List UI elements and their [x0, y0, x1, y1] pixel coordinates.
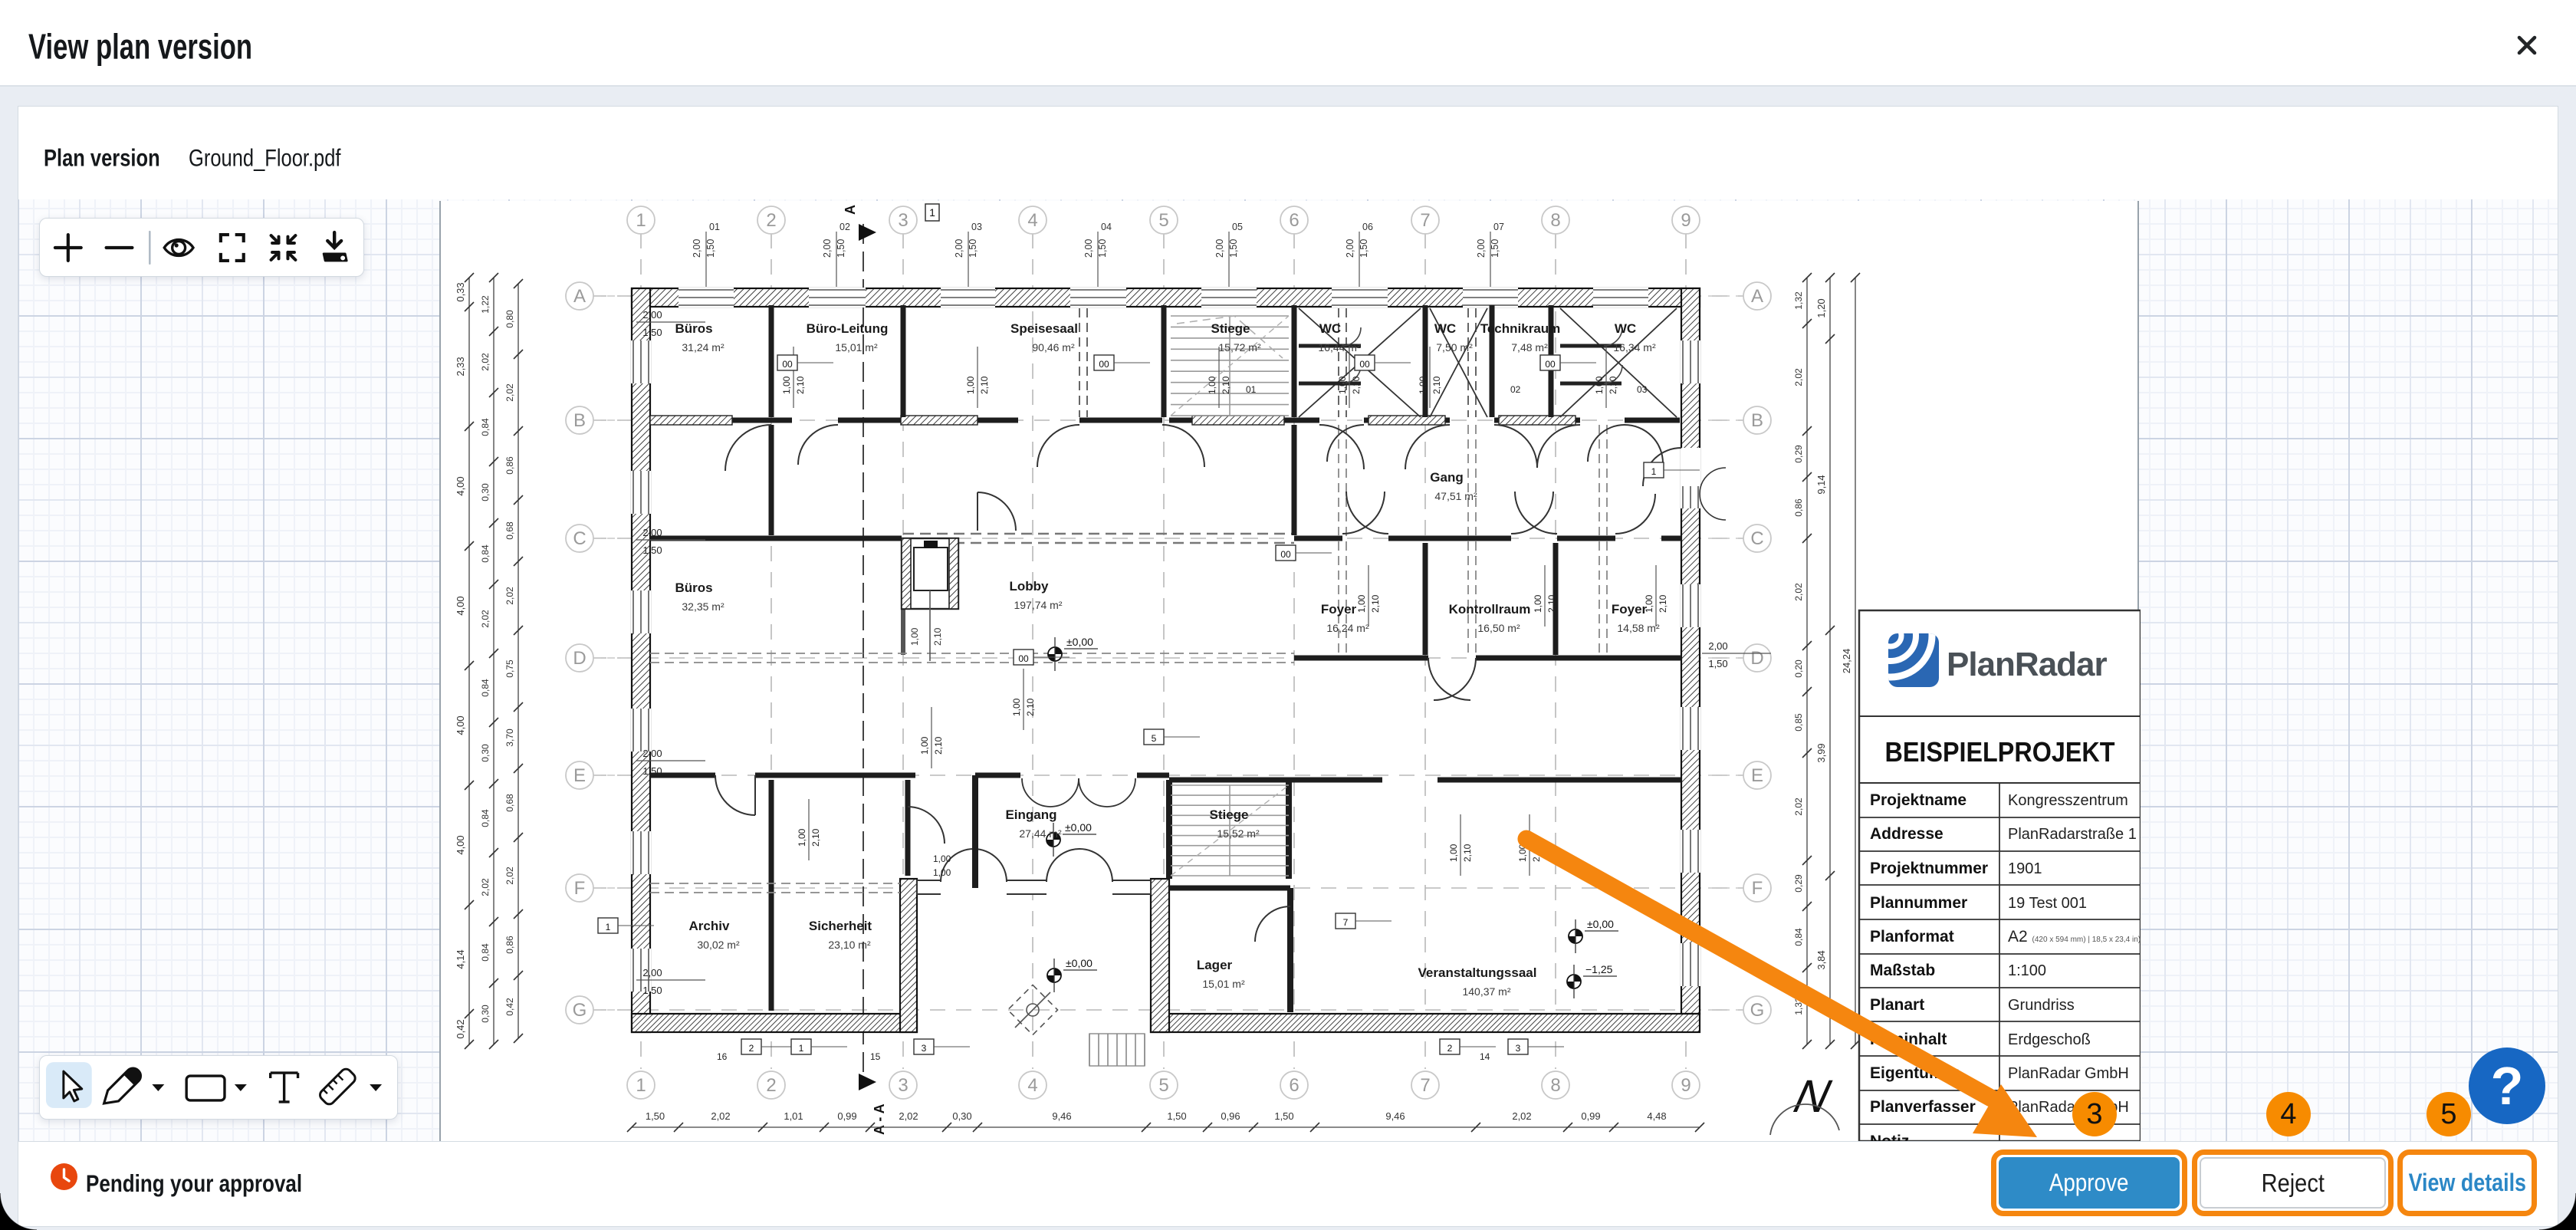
svg-text:0,42: 0,42: [455, 1019, 466, 1038]
svg-text:Planinhalt: Planinhalt: [1870, 1031, 1947, 1048]
svg-text:2,10: 2,10: [1370, 594, 1381, 613]
svg-text:1,00: 1,00: [1533, 594, 1543, 613]
svg-text:Foyer: Foyer: [1321, 602, 1357, 617]
svg-text:2,10: 2,10: [1608, 376, 1618, 394]
svg-text:Addresse: Addresse: [1870, 825, 1944, 843]
svg-text:Maßstab: Maßstab: [1870, 962, 1935, 979]
svg-text:1,00: 1,00: [797, 828, 807, 847]
svg-text:1,00: 1,00: [1594, 376, 1605, 394]
svg-text:D: D: [1750, 648, 1763, 669]
svg-text:01: 01: [1246, 384, 1257, 395]
svg-text:2,00: 2,00: [822, 239, 833, 258]
svg-text:2: 2: [766, 1075, 776, 1096]
svg-text:Eigentümer: Eigentümer: [1870, 1064, 1959, 1082]
svg-text:2: 2: [766, 210, 776, 231]
svg-text:3: 3: [898, 210, 908, 231]
svg-text:2,02: 2,02: [899, 1110, 918, 1122]
svg-text:1,50: 1,50: [705, 239, 716, 258]
svg-text:2,02: 2,02: [480, 610, 491, 628]
svg-text:Archiv: Archiv: [689, 919, 730, 933]
svg-text:2,10: 2,10: [1221, 376, 1231, 394]
svg-text:C: C: [573, 528, 586, 549]
svg-text:4: 4: [1027, 210, 1037, 231]
svg-text:0,86: 0,86: [504, 936, 515, 954]
svg-text:0,30: 0,30: [952, 1110, 971, 1122]
svg-text:6: 6: [1289, 210, 1299, 231]
svg-text:0,84: 0,84: [1793, 928, 1804, 946]
svg-text:7: 7: [1343, 917, 1349, 928]
svg-text:9,14: 9,14: [1815, 475, 1827, 494]
svg-text:B: B: [1751, 410, 1763, 431]
svg-text:Foyer: Foyer: [1612, 602, 1648, 617]
svg-text:6: 6: [1289, 1075, 1299, 1096]
svg-text:5: 5: [1158, 1075, 1168, 1096]
svg-text:−1,25: −1,25: [1585, 963, 1613, 975]
svg-text:Stiege: Stiege: [1209, 807, 1248, 822]
svg-text:1,00: 1,00: [1356, 594, 1367, 613]
svg-text:7,48 m²: 7,48 m²: [1511, 341, 1548, 354]
svg-text:1,00: 1,00: [1644, 594, 1654, 613]
svg-text:9: 9: [1681, 1075, 1691, 1096]
svg-text:1,00: 1,00: [933, 853, 951, 864]
svg-text:07: 07: [1493, 222, 1504, 232]
svg-text:8: 8: [1550, 210, 1560, 231]
svg-text:Kontrollraum: Kontrollraum: [1449, 602, 1531, 617]
svg-text:14,58 m²: 14,58 m²: [1617, 622, 1660, 634]
svg-text:2,00: 2,00: [954, 239, 964, 258]
svg-text:00: 00: [1359, 359, 1370, 370]
svg-text:0,84: 0,84: [480, 809, 491, 827]
svg-text:0,75: 0,75: [504, 659, 515, 678]
svg-text:0,84: 0,84: [480, 544, 491, 563]
svg-text:3: 3: [1516, 1043, 1521, 1054]
svg-text:PlanRadarstraße 1: PlanRadarstraße 1: [2008, 826, 2137, 843]
svg-text:A: A: [1751, 286, 1763, 307]
svg-text:2,10: 2,10: [1462, 844, 1473, 862]
svg-text:1: 1: [636, 210, 646, 231]
svg-text:D: D: [573, 648, 586, 669]
svg-text:2,10: 2,10: [810, 828, 821, 847]
svg-text:A - A: A - A: [872, 1103, 887, 1135]
svg-text:1,32: 1,32: [1793, 997, 1804, 1015]
svg-text:2,00: 2,00: [1083, 239, 1094, 258]
svg-text:15,52 m²: 15,52 m²: [1217, 827, 1260, 840]
svg-text:05: 05: [1232, 222, 1243, 232]
svg-text:2,02: 2,02: [504, 587, 515, 605]
svg-text:2,10: 2,10: [1431, 376, 1442, 394]
svg-text:3: 3: [922, 1043, 927, 1054]
svg-text:0,68: 0,68: [504, 794, 515, 812]
svg-text:0,29: 0,29: [1793, 874, 1804, 893]
svg-text:02: 02: [1510, 384, 1521, 395]
svg-text:1: 1: [799, 1043, 804, 1054]
svg-text:Stiege: Stiege: [1211, 321, 1250, 336]
svg-text:197,74 m²: 197,74 m²: [1014, 599, 1062, 611]
svg-text:Veranstaltungssaal: Veranstaltungssaal: [1418, 965, 1537, 980]
svg-text:1,22: 1,22: [480, 295, 491, 314]
svg-text:Grundriss: Grundriss: [2008, 997, 2075, 1014]
svg-text:0,20: 0,20: [1793, 659, 1804, 678]
svg-text:1,50: 1,50: [968, 239, 978, 258]
svg-text:0,30: 0,30: [480, 744, 491, 762]
svg-text:Technikraum: Technikraum: [1480, 321, 1561, 336]
svg-text:4,00: 4,00: [455, 715, 466, 735]
svg-text:2,00: 2,00: [1345, 239, 1355, 258]
svg-text:F: F: [1752, 878, 1763, 899]
svg-text:90,46 m²: 90,46 m²: [1032, 341, 1075, 354]
svg-text:Plannummer: Plannummer: [1870, 894, 1967, 912]
svg-text:01: 01: [709, 222, 720, 232]
svg-text:2,10: 2,10: [932, 627, 943, 646]
svg-text:24,24: 24,24: [1841, 649, 1852, 674]
svg-text:±0,00: ±0,00: [1065, 821, 1092, 834]
svg-text:±0,00: ±0,00: [1066, 636, 1093, 648]
svg-text:00: 00: [1018, 653, 1029, 664]
svg-text:2,10: 2,10: [1546, 594, 1557, 613]
svg-text:32,35 m²: 32,35 m²: [682, 600, 724, 613]
svg-text:14: 14: [1480, 1051, 1490, 1062]
svg-text:F: F: [574, 878, 586, 899]
svg-text:3,84: 3,84: [1815, 950, 1827, 969]
svg-text:Projektnummer: Projektnummer: [1870, 860, 1988, 877]
svg-text:4,00: 4,00: [455, 476, 466, 495]
svg-text:1,50: 1,50: [1228, 239, 1239, 258]
svg-text:Sicherheit: Sicherheit: [809, 919, 872, 933]
svg-text:3: 3: [898, 1075, 908, 1096]
svg-text:16: 16: [717, 1051, 728, 1062]
svg-text:2: 2: [1447, 1043, 1453, 1054]
svg-text:1,32: 1,32: [1793, 291, 1804, 310]
svg-text:Büros: Büros: [675, 580, 712, 595]
svg-text:Planformat: Planformat: [1870, 928, 1954, 946]
svg-text:16,50 m²: 16,50 m²: [1477, 622, 1520, 634]
svg-text:1,00: 1,00: [919, 736, 930, 755]
svg-text:1,50: 1,50: [642, 544, 662, 556]
svg-text:1,00: 1,00: [1517, 844, 1528, 862]
svg-text:0,30: 0,30: [480, 1005, 491, 1023]
svg-text:2,10: 2,10: [1351, 376, 1362, 394]
svg-text:1,50: 1,50: [1359, 239, 1369, 258]
svg-text:E: E: [573, 765, 586, 786]
svg-text:WC: WC: [1319, 321, 1341, 336]
svg-text:0,33: 0,33: [455, 282, 466, 301]
svg-text:Erdgeschoß: Erdgeschoß: [2008, 1031, 2091, 1048]
svg-text:1,00: 1,00: [1418, 376, 1428, 394]
svg-text:0,29: 0,29: [1793, 445, 1804, 463]
svg-text:03: 03: [1637, 384, 1648, 395]
svg-text:1,00: 1,00: [781, 376, 792, 394]
svg-text:2,00: 2,00: [642, 967, 662, 978]
svg-text:1901: 1901: [2008, 860, 2042, 877]
svg-text:1,20: 1,20: [1815, 298, 1827, 317]
svg-text:7,50 m²: 7,50 m²: [1436, 341, 1473, 354]
svg-text:2: 2: [749, 1043, 754, 1054]
svg-text:9,46: 9,46: [1385, 1110, 1405, 1122]
svg-text:BEISPIELPROJEKT: BEISPIELPROJEKT: [1885, 736, 2115, 768]
svg-text:1,00: 1,00: [1011, 698, 1022, 716]
svg-text:15,01 m²: 15,01 m²: [835, 341, 878, 354]
svg-text:2,00: 2,00: [692, 239, 702, 258]
svg-text:02: 02: [839, 222, 850, 232]
svg-text:1,00: 1,00: [1337, 376, 1348, 394]
svg-text:1: 1: [636, 1075, 646, 1096]
svg-text:PlanRadar: PlanRadar: [1947, 646, 2108, 683]
svg-text:Büros: Büros: [675, 321, 712, 336]
svg-text:0,86: 0,86: [504, 456, 515, 475]
svg-text:4,48: 4,48: [1647, 1110, 1666, 1122]
svg-text:C: C: [1750, 528, 1763, 549]
svg-text:Planart: Planart: [1870, 996, 1924, 1014]
svg-text:1,00: 1,00: [1207, 376, 1217, 394]
svg-text:0,99: 0,99: [837, 1110, 856, 1122]
svg-text:19 Test 001: 19 Test 001: [2008, 895, 2087, 912]
svg-text:47,51 m²: 47,51 m²: [1434, 490, 1477, 502]
svg-text:1,50: 1,50: [1274, 1110, 1293, 1122]
svg-text:1,50: 1,50: [642, 985, 662, 996]
svg-text:0,85: 0,85: [1793, 713, 1804, 732]
svg-text:1,50: 1,50: [642, 765, 662, 777]
svg-text:5: 5: [1158, 210, 1168, 231]
svg-text:0,96: 0,96: [1221, 1110, 1240, 1122]
svg-text:A: A: [573, 286, 586, 307]
svg-text:2,00: 2,00: [642, 527, 662, 538]
svg-text:4,00: 4,00: [455, 596, 466, 615]
svg-text:1,01: 1,01: [784, 1110, 803, 1122]
svg-text:Planverfasser: Planverfasser: [1870, 1098, 1976, 1116]
svg-text:0,86: 0,86: [1793, 498, 1804, 517]
svg-text:1: 1: [929, 206, 935, 219]
svg-text:G: G: [1750, 1000, 1765, 1021]
svg-text:4,00: 4,00: [455, 835, 466, 854]
svg-text:1,50: 1,50: [1097, 239, 1108, 258]
svg-text:1,50: 1,50: [1167, 1110, 1186, 1122]
svg-text:00: 00: [782, 359, 793, 370]
svg-text:0,84: 0,84: [480, 679, 491, 697]
svg-text:23,10 m²: 23,10 m²: [828, 939, 871, 951]
svg-text:2,00: 2,00: [1214, 239, 1225, 258]
svg-text:2,00: 2,00: [642, 309, 662, 321]
svg-text:0,68: 0,68: [504, 521, 515, 540]
svg-text:2,02: 2,02: [1512, 1110, 1531, 1122]
svg-text:PlanRadar GmbH: PlanRadar GmbH: [2008, 1065, 2129, 1082]
svg-text:0,80: 0,80: [504, 310, 515, 328]
svg-text:2,00: 2,00: [1476, 239, 1487, 258]
svg-text:7: 7: [1420, 210, 1430, 231]
svg-text:2,02: 2,02: [1793, 368, 1804, 386]
svg-text:E: E: [1751, 765, 1763, 786]
svg-text:3,99: 3,99: [1815, 743, 1827, 762]
svg-text:2,02: 2,02: [1793, 583, 1804, 601]
svg-text:4,14: 4,14: [455, 949, 466, 969]
svg-text:16,34 m²: 16,34 m²: [1613, 341, 1656, 354]
svg-text:16,24 m²: 16,24 m²: [1326, 622, 1369, 634]
svg-text:00: 00: [1099, 359, 1109, 370]
svg-text:2,10: 2,10: [933, 736, 944, 755]
svg-text:Speisesaal: Speisesaal: [1010, 321, 1078, 336]
svg-text:1,00: 1,00: [1448, 844, 1459, 862]
svg-text:Projektname: Projektname: [1870, 791, 1967, 809]
svg-text:1,50: 1,50: [1708, 658, 1727, 669]
svg-text:140,37 m²: 140,37 m²: [1462, 985, 1510, 998]
svg-text:1: 1: [606, 922, 611, 932]
svg-text:2,02: 2,02: [1793, 798, 1804, 816]
svg-text:B: B: [573, 410, 586, 431]
svg-text:0,84: 0,84: [480, 943, 491, 962]
svg-text:G: G: [573, 1000, 587, 1021]
svg-text:WC: WC: [1434, 321, 1456, 336]
svg-text:1,50: 1,50: [836, 239, 846, 258]
svg-text:±0,00: ±0,00: [1066, 957, 1092, 969]
svg-text:±0,00: ±0,00: [1587, 918, 1614, 930]
svg-text:2,10: 2,10: [1658, 594, 1668, 613]
svg-text:4: 4: [1027, 1075, 1037, 1096]
svg-text:0,30: 0,30: [480, 483, 491, 502]
svg-text:Gang: Gang: [1430, 470, 1463, 485]
svg-text:15: 15: [870, 1051, 881, 1062]
svg-text:A -: A -: [843, 201, 858, 215]
svg-text:Büro-Leitung: Büro-Leitung: [807, 321, 889, 336]
svg-text:2,02: 2,02: [480, 878, 491, 896]
svg-text:2,10: 2,10: [979, 376, 990, 394]
svg-text:04: 04: [1101, 222, 1112, 232]
svg-text:3,70: 3,70: [504, 728, 515, 747]
svg-text:31,24 m²: 31,24 m²: [682, 341, 724, 354]
svg-text:1:100: 1:100: [2008, 962, 2046, 979]
svg-text:2,10: 2,10: [1531, 844, 1542, 862]
svg-text:Eingang: Eingang: [1005, 807, 1056, 822]
svg-text:1,50: 1,50: [1490, 239, 1500, 258]
svg-text:2,33: 2,33: [455, 357, 466, 376]
svg-text:1: 1: [1651, 466, 1657, 477]
svg-text:8: 8: [1550, 1075, 1560, 1096]
svg-text:Lager: Lager: [1197, 958, 1233, 972]
svg-text:Lobby: Lobby: [1010, 579, 1050, 594]
svg-text:2,10: 2,10: [795, 376, 806, 394]
svg-text:2,10: 2,10: [1025, 698, 1036, 716]
svg-text:2,02: 2,02: [504, 383, 515, 402]
svg-text:7: 7: [1420, 1075, 1430, 1096]
svg-text:0,84: 0,84: [480, 418, 491, 436]
svg-text:15,01 m²: 15,01 m²: [1202, 978, 1245, 990]
svg-text:Kongresszentrum: Kongresszentrum: [2008, 792, 2128, 809]
svg-text:WC: WC: [1615, 321, 1636, 336]
svg-text:9,46: 9,46: [1052, 1110, 1071, 1122]
svg-text:1,00: 1,00: [933, 867, 951, 878]
svg-text:2,02: 2,02: [711, 1110, 730, 1122]
svg-text:1,00: 1,00: [909, 627, 920, 646]
svg-text:00: 00: [1545, 359, 1556, 370]
svg-text:27,44 m²: 27,44 m²: [1019, 827, 1062, 840]
svg-text:00: 00: [1280, 549, 1291, 560]
svg-text:1,50: 1,50: [642, 327, 662, 338]
svg-text:15,72 m²: 15,72 m²: [1218, 341, 1261, 354]
svg-text:06: 06: [1362, 222, 1373, 232]
svg-text:03: 03: [971, 222, 982, 232]
svg-text:1,00: 1,00: [965, 376, 976, 394]
svg-text:2,00: 2,00: [1708, 640, 1727, 652]
svg-text:Notiz: Notiz: [1870, 1133, 1909, 1141]
svg-text:30,02 m²: 30,02 m²: [697, 939, 740, 951]
svg-text:16,44 m²: 16,44 m²: [1318, 341, 1361, 354]
svg-text:0,99: 0,99: [1581, 1110, 1600, 1122]
svg-text:0,42: 0,42: [504, 998, 515, 1016]
svg-text:2,00: 2,00: [642, 748, 662, 759]
svg-text:2,02: 2,02: [480, 353, 491, 371]
svg-text:1,50: 1,50: [646, 1110, 665, 1122]
svg-text:2,02: 2,02: [504, 867, 515, 885]
svg-text:9: 9: [1681, 210, 1691, 231]
svg-text:5: 5: [1152, 733, 1157, 744]
